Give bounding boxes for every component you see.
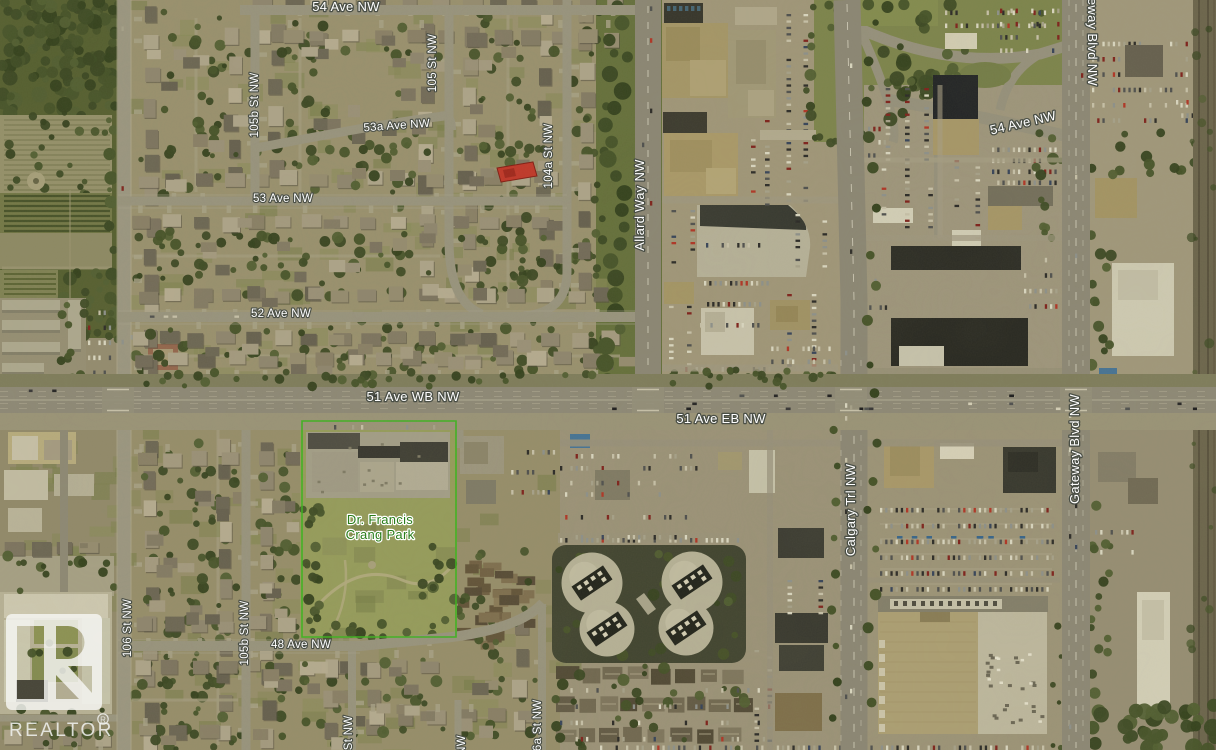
svg-text:51 Ave WB NW: 51 Ave WB NW: [367, 389, 460, 404]
svg-text:106 St NW: 106 St NW: [122, 599, 134, 657]
svg-text:Crang Park: Crang Park: [346, 527, 415, 542]
svg-text:Gateway Blvd NW: Gateway Blvd NW: [1067, 394, 1082, 504]
svg-text:105b St NW: 105b St NW: [249, 73, 261, 138]
svg-text:106a St NW: 106a St NW: [532, 700, 544, 750]
svg-text:105 St NW: 105 St NW: [427, 34, 439, 92]
svg-text:R: R: [100, 716, 106, 725]
svg-text:105b St NW: 105b St NW: [239, 601, 251, 666]
svg-text:53 Ave NW: 53 Ave NW: [253, 193, 313, 205]
svg-text:105a St NW: 105a St NW: [343, 716, 355, 750]
svg-text:Allard Way NW: Allard Way NW: [632, 159, 647, 251]
svg-text:51 Ave EB NW: 51 Ave EB NW: [676, 411, 766, 426]
svg-text:52 Ave NW: 52 Ave NW: [251, 308, 311, 320]
svg-text:REALTOR: REALTOR: [9, 720, 114, 741]
svg-text:Dr. Francis: Dr. Francis: [347, 512, 413, 527]
svg-text:48 Ave NW: 48 Ave NW: [271, 639, 331, 651]
svg-text:104a St NW: 104a St NW: [543, 124, 555, 189]
svg-text:Calgary Trl NW: Calgary Trl NW: [843, 463, 858, 556]
svg-text:NW: NW: [456, 735, 468, 750]
svg-text:54 Ave NW: 54 Ave NW: [312, 0, 380, 14]
svg-text:Gateway Blvd NW: Gateway Blvd NW: [1085, 0, 1100, 86]
